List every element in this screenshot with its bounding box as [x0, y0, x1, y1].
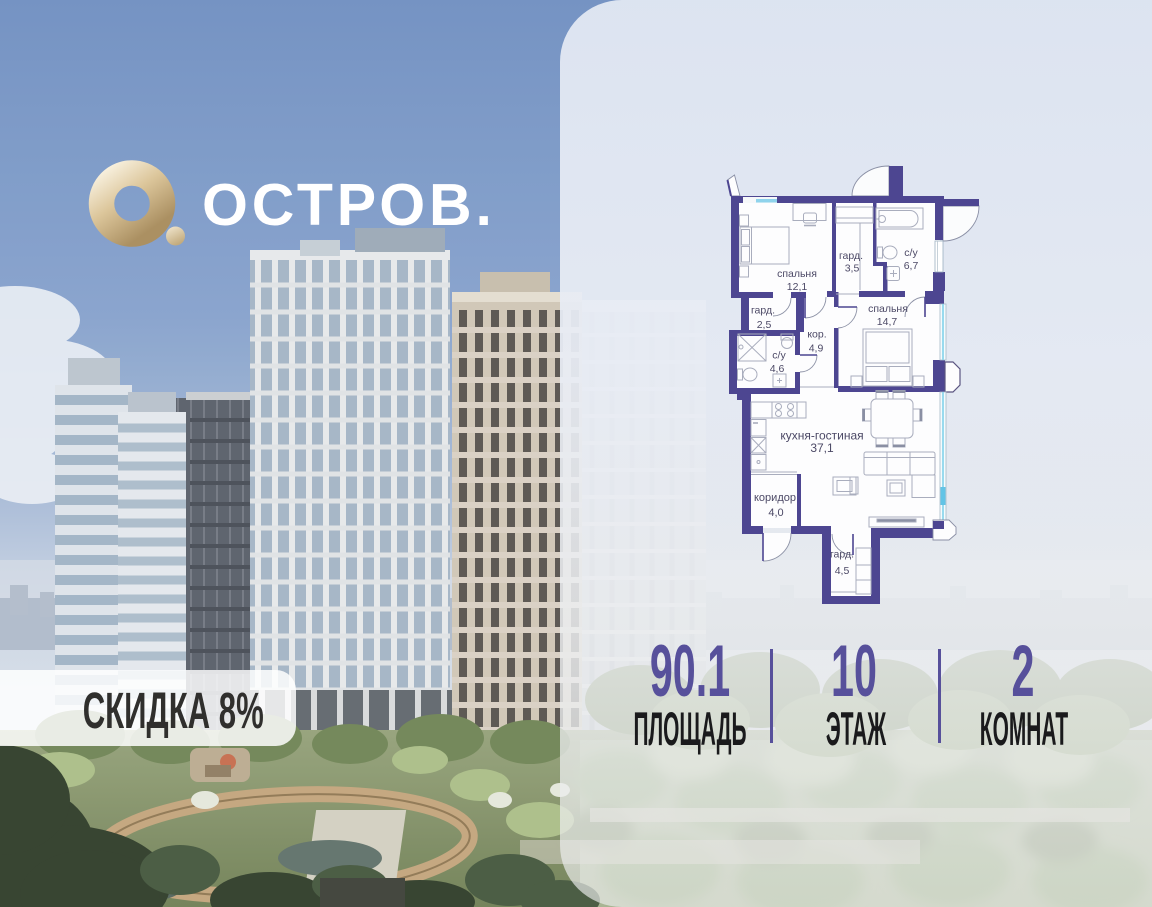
svg-text:спальня: спальня	[868, 303, 908, 315]
svg-text:4,5: 4,5	[835, 565, 850, 577]
svg-text:гард.: гард.	[839, 250, 863, 262]
svg-text:37,1: 37,1	[810, 441, 834, 455]
svg-text:гард.: гард.	[751, 305, 775, 317]
svg-text:спальня: спальня	[777, 268, 817, 280]
svg-text:4,0: 4,0	[768, 507, 783, 519]
svg-text:12,1: 12,1	[787, 281, 808, 293]
svg-text:гард.: гард.	[830, 549, 854, 561]
svg-text:4,6: 4,6	[770, 363, 785, 375]
svg-text:4,9: 4,9	[809, 343, 824, 355]
svg-text:3,5: 3,5	[845, 263, 860, 275]
svg-text:коридор: коридор	[754, 492, 796, 504]
svg-text:6,7: 6,7	[904, 260, 919, 272]
svg-text:с/у: с/у	[904, 247, 918, 259]
svg-text:14,7: 14,7	[877, 316, 898, 328]
svg-text:с/у: с/у	[772, 350, 786, 362]
svg-text:2,5: 2,5	[757, 319, 772, 331]
svg-text:кор.: кор.	[807, 329, 826, 341]
